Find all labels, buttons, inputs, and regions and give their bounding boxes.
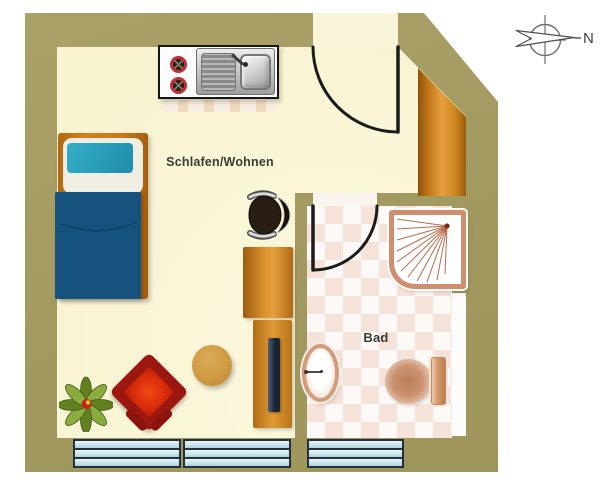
washbasin-faucet-icon [320,370,323,373]
washbasin-faucet-icon [307,371,321,373]
kitchenette [158,45,279,99]
tv-sideboard [253,320,292,428]
room-label-bad: Bad [346,330,406,345]
single-bed [58,133,148,299]
plant-flower-center [86,400,90,404]
window-glass [75,441,179,448]
bed-pillow [67,143,133,173]
window-glass [185,441,289,448]
plant [59,376,113,432]
window-glass [309,450,402,457]
washbasin-faucet-icon [304,370,308,374]
compass-rose-icon [506,6,592,72]
kitchen-sink-unit [196,48,275,95]
window-glass [309,441,402,448]
armchair-frame [109,352,188,431]
stove-burner-icon [170,77,187,94]
window-glass [75,459,179,466]
tv-screen [268,338,280,412]
window-glass [75,450,179,457]
window [73,439,181,468]
desk [243,247,293,318]
room-label-schlafen-wohnen: Schlafen/Wohnen [150,155,290,169]
toilet-bowl [385,359,432,404]
stool [192,345,232,386]
blanket-fold-line [55,192,141,299]
toilet-tank [429,355,448,407]
window [183,439,291,468]
window-glass [309,459,402,466]
window-glass [185,450,289,457]
entry-door-opening [313,13,398,47]
kitchen-faucet-icon [243,62,248,67]
compass-north-label: N [583,30,594,47]
shower [389,210,466,289]
bed-blanket [55,192,141,299]
shower-drain-rays [394,215,461,284]
chair-seat [249,196,281,234]
armchair [110,352,188,432]
bathroom-door-opening [313,193,377,206]
sink-basin [240,54,271,90]
sink-drainer [201,53,236,91]
bathroom-window [307,439,404,468]
office-chair [241,189,295,241]
stove-burner-icon [170,56,187,73]
window-glass [185,459,289,466]
floor-plan-page: Schlafen/Wohnen Bad N [0,0,600,492]
shower-drain [444,223,449,228]
kitchenette-shadow [162,100,276,112]
bathroom-side-window [452,293,466,436]
